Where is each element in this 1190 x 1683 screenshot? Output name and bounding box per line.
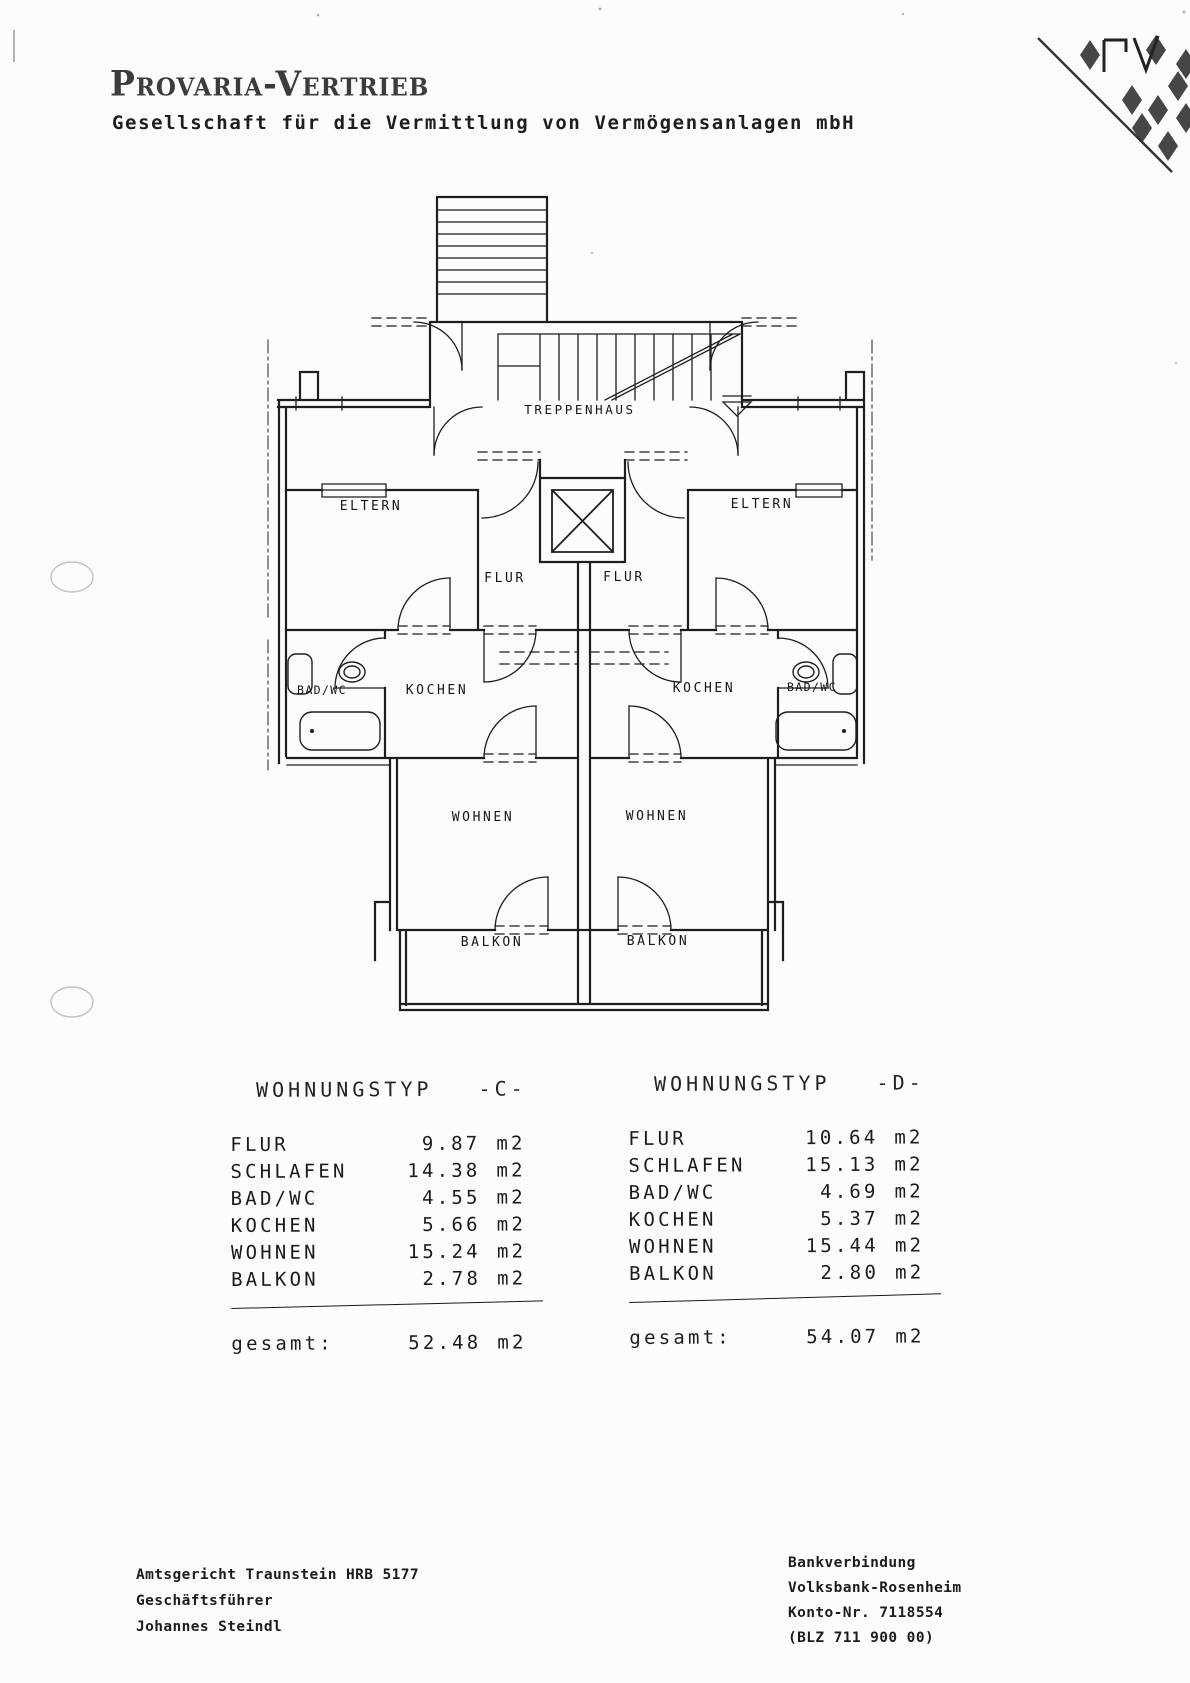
scan-artifacts — [14, 8, 1185, 1017]
room-label-balkon-right: BALKON — [627, 934, 690, 949]
room-label-eltern-left: ELTERN — [340, 499, 403, 514]
company-logo-mark — [1038, 35, 1190, 172]
room-label-kochen-right: KOCHEN — [673, 681, 736, 696]
toilet-icon — [339, 662, 365, 682]
floor-plan-drawing: TREPPENHAUS ELTERN ELTERN FLUR FLUR BAD/… — [0, 0, 1190, 1683]
table-title-text: WOHNUNGSTYP — [256, 1077, 433, 1102]
footer-line: Geschäftsführer — [136, 1588, 419, 1614]
table-row: BALKON2.80m2 — [629, 1259, 941, 1288]
table-row: SCHLAFEN14.38m2 — [230, 1157, 542, 1186]
footer-line: Johannes Steindl — [136, 1614, 419, 1640]
footer-line: Bankverbindung — [788, 1551, 961, 1576]
room-label-wohnen-right: WOHNEN — [626, 809, 689, 824]
table-row: BAD/WC4.55m2 — [231, 1184, 543, 1213]
room-label-bad-wc-left: BAD/WC — [297, 683, 347, 697]
room-label-flur-left: FLUR — [484, 571, 526, 586]
apartment-table-d: WOHNUNGSTYP -D- FLUR10.64m2 SCHLAFEN15.1… — [628, 1070, 941, 1349]
footer-line: Amtsgericht Traunstein HRB 5177 — [136, 1562, 419, 1588]
table-row: SCHLAFEN15.13m2 — [628, 1151, 940, 1180]
table-title-text: WOHNUNGSTYP — [654, 1071, 831, 1096]
scanned-document-page: Provaria-Vertrieb Gesellschaft für die V… — [0, 0, 1190, 1683]
room-label-balkon-left: BALKON — [461, 935, 524, 950]
floor-plan — [268, 197, 872, 1010]
table-row: FLUR9.87m2 — [230, 1130, 542, 1159]
table-type-code: -C- — [478, 1076, 526, 1100]
footer-line: Volksbank-Rosenheim — [788, 1576, 961, 1601]
footer-line: Konto-Nr. 7118554 — [788, 1601, 961, 1626]
footer-line: (BLZ 711 900 00) — [788, 1626, 961, 1651]
table-row: BAD/WC4.69m2 — [629, 1178, 941, 1207]
table-title: WOHNUNGSTYP -D- — [654, 1070, 940, 1095]
table-divider — [231, 1300, 543, 1309]
punch-hole-icon — [51, 562, 93, 592]
table-row: BALKON2.78m2 — [231, 1265, 543, 1294]
table-row: KOCHEN5.37m2 — [629, 1205, 941, 1234]
table-row: WOHNEN15.44m2 — [629, 1232, 941, 1261]
punch-hole-icon — [51, 987, 93, 1017]
table-row: WOHNEN15.24m2 — [231, 1238, 543, 1267]
room-label-bad-wc-right: BAD/WC — [787, 680, 837, 694]
room-label-wohnen-left: WOHNEN — [452, 810, 515, 825]
bathtub-icon — [300, 712, 380, 750]
apartment-table-c: WOHNUNGSTYP -C- FLUR9.87m2 SCHLAFEN14.38… — [230, 1076, 543, 1355]
table-row: FLUR10.64m2 — [628, 1124, 940, 1153]
table-total-row: gesamt: 54.07 m2 — [629, 1325, 941, 1349]
registry-footer: Amtsgericht Traunstein HRB 5177 Geschäft… — [136, 1562, 419, 1640]
bank-footer: Bankverbindung Volksbank-Rosenheim Konto… — [788, 1551, 961, 1651]
room-label-kochen-left: KOCHEN — [406, 683, 469, 698]
room-label-flur-right: FLUR — [603, 570, 645, 585]
table-total-row: gesamt: 52.48 m2 — [231, 1331, 543, 1355]
toilet-icon — [793, 662, 819, 682]
room-label-treppenhaus: TREPPENHAUS — [524, 402, 635, 417]
table-row: KOCHEN5.66m2 — [231, 1211, 543, 1240]
table-title: WOHNUNGSTYP -C- — [256, 1076, 542, 1101]
bathtub-icon — [776, 712, 856, 750]
room-label-eltern-right: ELTERN — [731, 497, 794, 512]
table-type-code: -D- — [876, 1070, 924, 1094]
table-divider — [629, 1293, 941, 1303]
